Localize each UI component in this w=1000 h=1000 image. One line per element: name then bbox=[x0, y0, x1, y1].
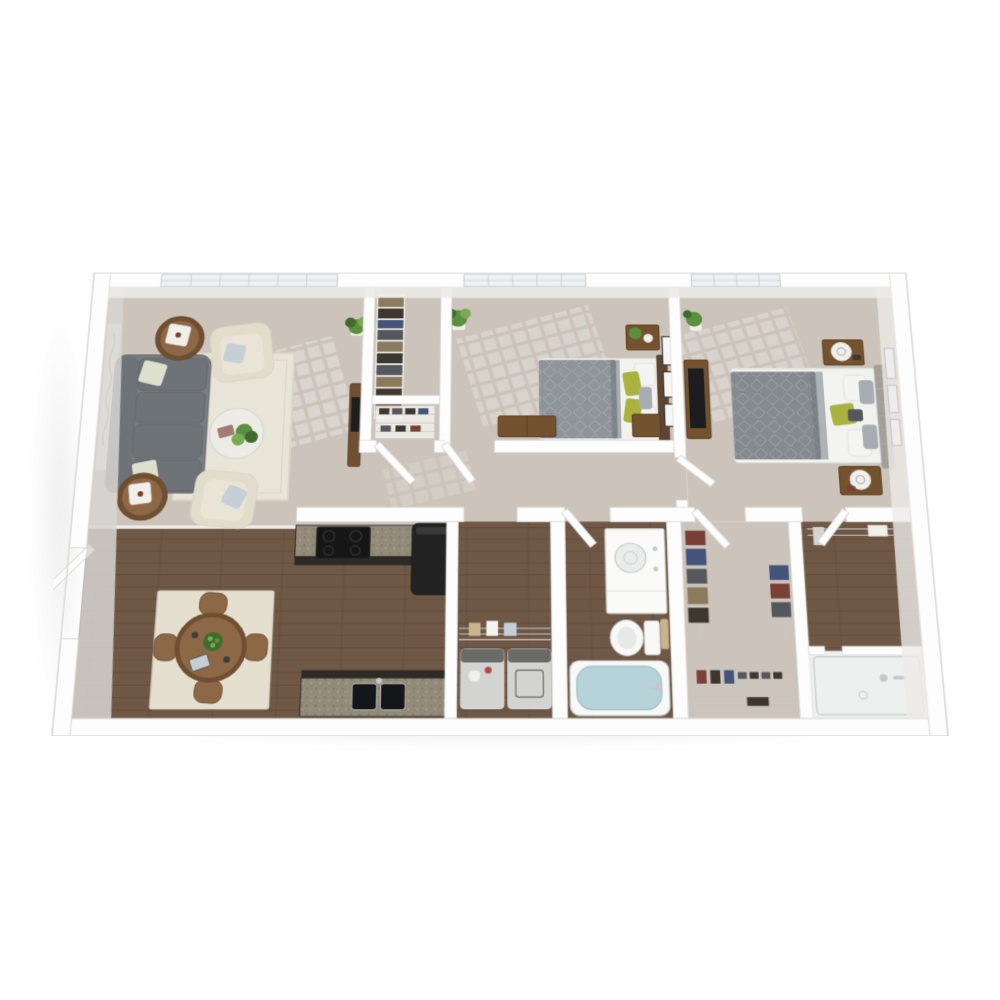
bathtub bbox=[570, 661, 671, 716]
wall-laundry-bathroom bbox=[550, 522, 567, 719]
wall-mid-segment bbox=[745, 507, 803, 521]
washer bbox=[460, 649, 504, 709]
hanging-garment bbox=[686, 549, 707, 565]
nightstand-bed1 bbox=[626, 325, 660, 350]
wall-kitchen-right bbox=[444, 522, 458, 719]
toilet bbox=[610, 620, 661, 656]
window-bedroom2 bbox=[691, 274, 780, 286]
media-console bbox=[684, 360, 711, 439]
shoe-box bbox=[747, 697, 769, 706]
dryer-panel bbox=[508, 649, 551, 662]
pillow-gray bbox=[862, 425, 879, 449]
book bbox=[846, 486, 856, 491]
detergent-bottle bbox=[468, 670, 480, 682]
hanging-garment bbox=[687, 569, 708, 584]
wall-south bbox=[52, 719, 948, 737]
hanging-garment bbox=[688, 608, 709, 623]
linen-closet bbox=[375, 406, 435, 439]
wall-shower-stub bbox=[809, 646, 825, 655]
pillow-gray bbox=[858, 380, 875, 404]
dining-area bbox=[149, 591, 274, 709]
armchair-bottom bbox=[188, 469, 259, 530]
wall-mid-segment bbox=[517, 507, 565, 521]
armchair-top bbox=[209, 321, 275, 383]
hanging-garment bbox=[687, 587, 708, 604]
nightstand-bed1-foot bbox=[632, 414, 661, 436]
wall-mid-segment bbox=[610, 507, 695, 521]
wall-mid-kitchen bbox=[296, 507, 464, 521]
tv bbox=[688, 368, 706, 428]
book bbox=[853, 355, 862, 360]
dryer bbox=[508, 649, 552, 709]
washer-panel bbox=[461, 649, 504, 662]
wall-north-inner-face bbox=[108, 287, 891, 298]
wall-bedroom1-south bbox=[494, 440, 674, 452]
shoes bbox=[773, 672, 782, 679]
sink-basin bbox=[615, 543, 647, 572]
hanging-garment bbox=[771, 602, 791, 617]
vanity bbox=[605, 529, 667, 614]
kitchen-upper-counter bbox=[294, 525, 414, 565]
shoes bbox=[761, 672, 770, 679]
stove bbox=[316, 527, 371, 558]
hanging-clothes bbox=[375, 297, 403, 411]
knob bbox=[485, 667, 492, 674]
hanging-garment bbox=[769, 565, 789, 580]
storage-box bbox=[868, 525, 888, 536]
folded-towel bbox=[504, 623, 517, 636]
sofa-cushion bbox=[132, 425, 204, 458]
vase bbox=[643, 334, 652, 342]
folded-towel bbox=[469, 623, 481, 636]
hanging-garment bbox=[710, 670, 720, 683]
wall-closet-divider bbox=[372, 396, 440, 405]
wall-closet-right bbox=[439, 287, 452, 452]
fridge-top bbox=[416, 527, 450, 534]
pillow-gray bbox=[639, 387, 653, 409]
throw-pillow bbox=[848, 409, 864, 421]
shower-handle bbox=[893, 676, 905, 679]
kitchen-lower-counter bbox=[300, 670, 451, 716]
tub-spout bbox=[648, 686, 656, 689]
toilet-tank bbox=[644, 621, 661, 655]
hanging-garment bbox=[696, 670, 706, 683]
towel-bar bbox=[660, 619, 669, 649]
floor-plan-svg bbox=[39, 273, 961, 736]
sofa-cushion bbox=[135, 392, 206, 423]
hanging-garment bbox=[770, 584, 790, 599]
window-living-room bbox=[161, 274, 338, 286]
nightstand-bed2-top bbox=[822, 340, 864, 365]
floor-plan-image bbox=[0, 0, 1000, 1000]
shoes bbox=[750, 672, 759, 679]
dresser-bed1 bbox=[498, 416, 556, 437]
shoes bbox=[738, 672, 747, 679]
duvet-pattern bbox=[730, 372, 821, 460]
window-bedroom1 bbox=[464, 274, 586, 286]
bed-2 bbox=[730, 365, 895, 468]
folded-towel bbox=[486, 621, 498, 636]
hanging-garment bbox=[724, 670, 734, 683]
hanging-garment bbox=[685, 531, 706, 546]
plan-scene bbox=[62, 247, 938, 739]
nightstand-bed2-bottom bbox=[839, 466, 883, 494]
